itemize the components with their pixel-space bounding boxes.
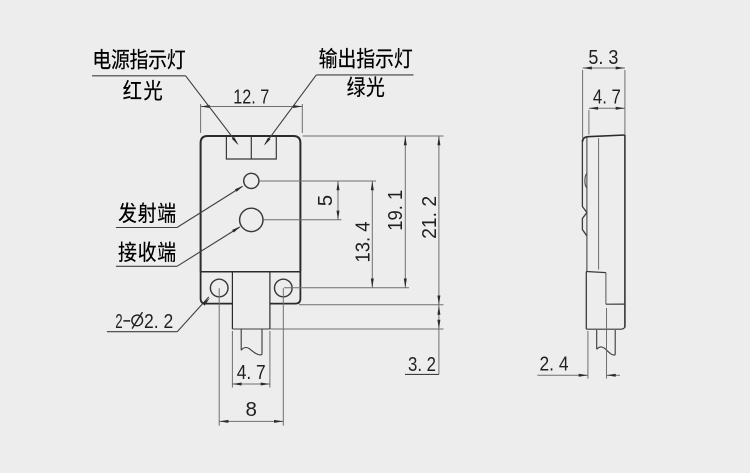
svg-text:12. 7: 12. 7 [233,86,269,109]
svg-text:8: 8 [245,398,256,421]
svg-text:5: 5 [314,195,337,206]
svg-text:4. 7: 4. 7 [593,85,621,108]
svg-text:5. 3: 5. 3 [588,46,618,69]
svg-text:21. 2: 21. 2 [418,196,441,239]
svg-text:13. 4: 13. 4 [351,222,374,263]
svg-text:3. 2: 3. 2 [408,353,436,376]
svg-text:4. 7: 4. 7 [237,361,266,384]
svg-text:2: 2 [115,310,122,333]
svg-text:2. 4: 2. 4 [540,353,569,376]
svg-text:2. 2: 2. 2 [144,310,173,333]
svg-text:19. 1: 19. 1 [384,190,407,231]
